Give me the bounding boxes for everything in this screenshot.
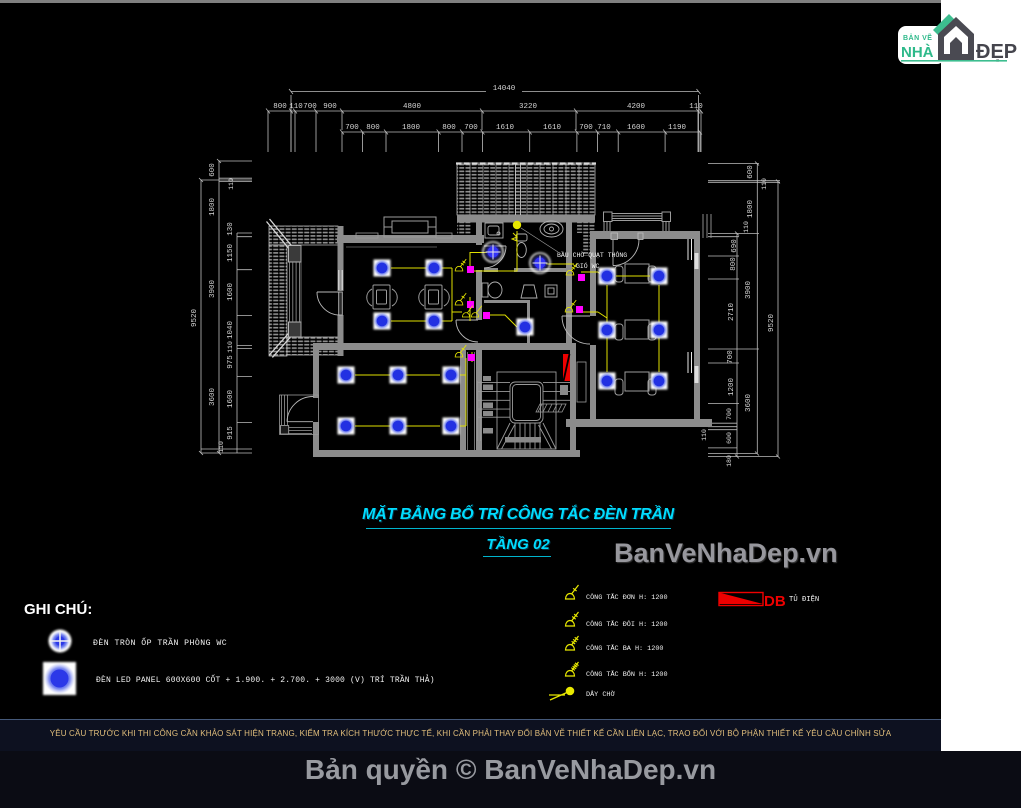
svg-text:800: 800 [366,124,380,132]
svg-text:CÔNG TẮC ĐƠN H: 1200: CÔNG TẮC ĐƠN H: 1200 [586,592,668,602]
svg-text:CÔNG TẮC ĐÔI H: 1200: CÔNG TẮC ĐÔI H: 1200 [586,619,668,629]
svg-text:NHÀ: NHÀ [901,44,934,61]
svg-text:CÔNG TẮC BỐN H: 1200: CÔNG TẮC BỐN H: 1200 [586,668,668,679]
svg-text:4200: 4200 [627,103,646,111]
svg-text:2710: 2710 [728,303,736,322]
svg-text:800: 800 [442,124,456,132]
svg-text:900: 900 [323,103,337,111]
svg-text:700: 700 [464,124,478,132]
svg-text:1190: 1190 [668,124,687,132]
svg-text:1800: 1800 [747,200,755,219]
svg-text:110: 110 [228,178,235,190]
svg-text:800: 800 [273,103,287,111]
svg-text:110: 110 [761,178,768,190]
svg-text:690: 690 [731,239,739,253]
svg-text:DB: DB [764,593,786,610]
svg-text:3900: 3900 [209,280,217,299]
svg-text:1800: 1800 [209,198,217,217]
svg-text:1610: 1610 [543,124,562,132]
svg-text:CÔNG TẮC BA H: 1200: CÔNG TẮC BA H: 1200 [586,643,664,653]
svg-text:110: 110 [743,221,750,233]
svg-text:700: 700 [303,103,317,111]
svg-text:3600: 3600 [209,388,217,407]
svg-text:1200: 1200 [728,378,736,397]
svg-text:600: 600 [209,163,217,177]
svg-text:1800: 1800 [402,124,421,132]
svg-text:110: 110 [689,103,703,111]
svg-text:600: 600 [726,432,733,444]
svg-text:600: 600 [747,165,755,179]
svg-text:1600: 1600 [227,283,235,302]
svg-text:800: 800 [730,257,738,271]
svg-text:700: 700 [726,408,733,420]
svg-text:110: 110 [289,103,303,111]
svg-text:ĐẸP: ĐẸP [976,41,1017,63]
svg-text:975: 975 [227,355,235,369]
svg-text:TỦ ĐIỆN: TỦ ĐIỆN [789,594,819,604]
svg-text:3900: 3900 [745,281,753,300]
svg-text:BẢN VẼ: BẢN VẼ [903,33,932,42]
svg-text:1600: 1600 [627,124,646,132]
svg-text:1040: 1040 [227,321,235,340]
svg-text:3600: 3600 [745,394,753,413]
svg-text:700: 700 [345,124,359,132]
svg-text:ĐÈN TRÒN ỐP TRẦN PHÒNG WC: ĐÈN TRÒN ỐP TRẦN PHÒNG WC [93,637,227,648]
svg-text:4800: 4800 [403,103,422,111]
svg-text:3220: 3220 [519,103,538,111]
svg-text:130: 130 [227,222,235,236]
svg-text:710: 710 [597,124,611,132]
svg-text:DÂY CHỜ: DÂY CHỜ [586,689,615,699]
svg-text:700: 700 [727,350,735,364]
svg-text:1600: 1600 [227,390,235,409]
svg-text:110: 110 [218,441,225,453]
svg-text:ĐÈN LED PANEL 600X600 CỐT + 1.: ĐÈN LED PANEL 600X600 CỐT + 1.900. + 2.7… [96,674,435,685]
svg-text:9520: 9520 [768,314,776,333]
svg-text:1150: 1150 [227,244,235,263]
svg-text:110: 110 [227,341,234,353]
svg-text:1610: 1610 [496,124,515,132]
svg-text:915: 915 [227,426,235,440]
svg-text:GIÓ WC: GIÓ WC [576,261,600,270]
svg-text:700: 700 [579,124,593,132]
svg-text:110: 110 [701,429,708,441]
svg-text:14040: 14040 [493,85,516,93]
svg-text:180: 180 [726,455,733,467]
svg-text:9520: 9520 [191,309,199,328]
